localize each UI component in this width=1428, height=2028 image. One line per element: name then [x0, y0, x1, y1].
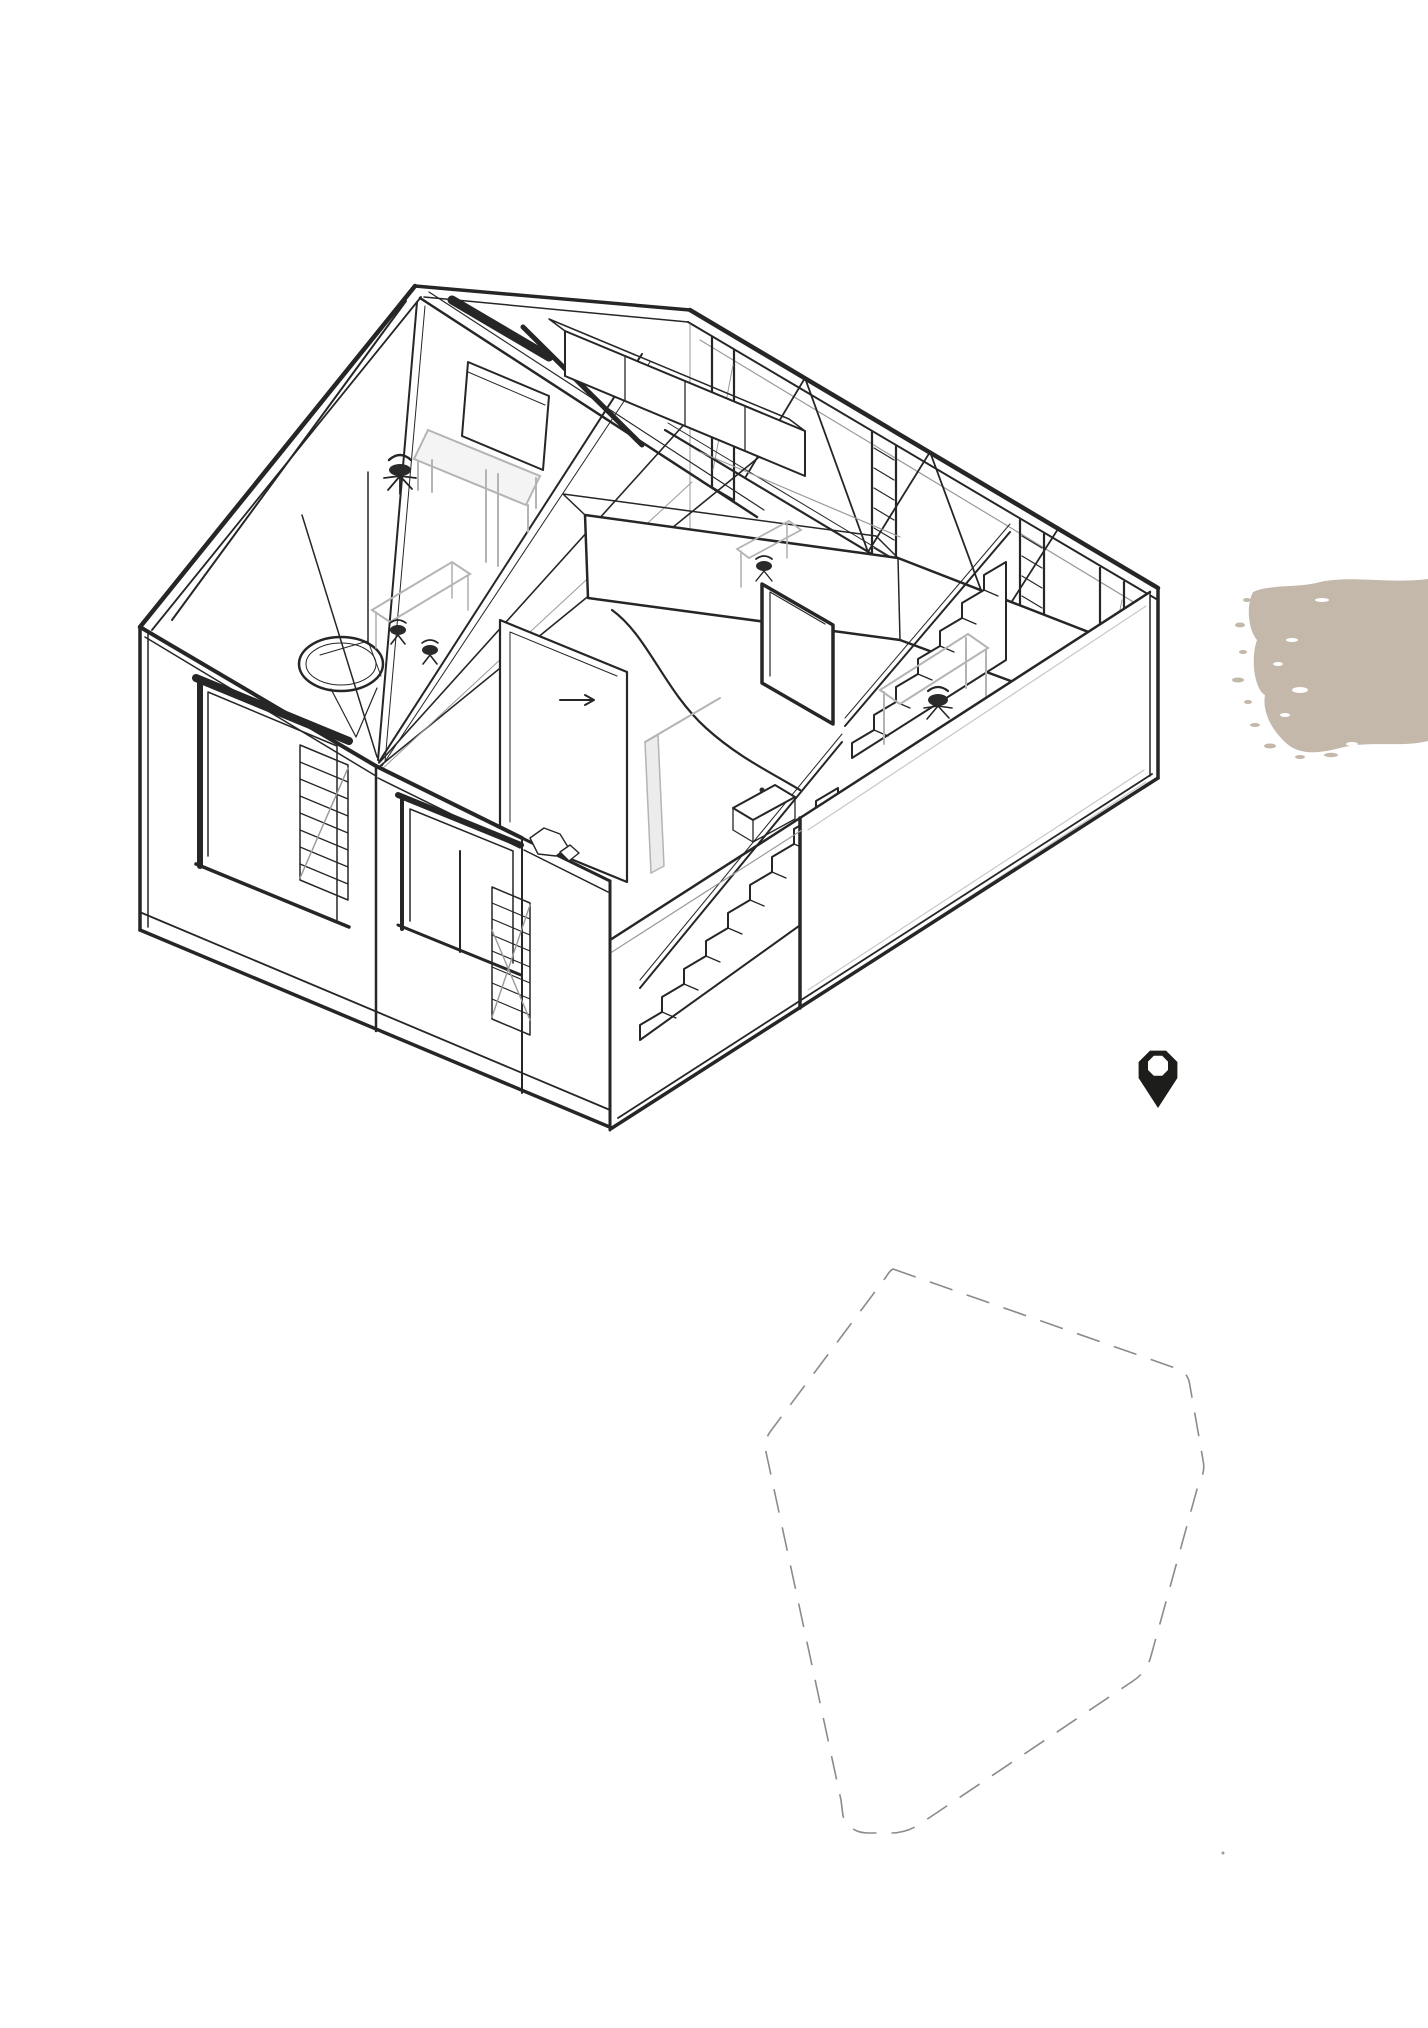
paint-swatch	[1232, 579, 1428, 759]
ring-lamp	[299, 472, 383, 737]
axonometric-house-figure	[0, 0, 1428, 2028]
page-artifact-dot	[1222, 1852, 1225, 1855]
site-outline-dashed	[765, 1269, 1204, 1833]
house-cutaway-drawing	[140, 286, 1158, 1130]
chair	[928, 694, 948, 706]
stair-balustrade-panel	[645, 735, 664, 873]
sheet	[0, 0, 1428, 2028]
small-chair	[756, 561, 772, 571]
basin	[733, 785, 795, 842]
cabinet-row	[549, 319, 805, 476]
desk-chair	[384, 455, 416, 494]
location-pin-icon	[1139, 1051, 1178, 1108]
